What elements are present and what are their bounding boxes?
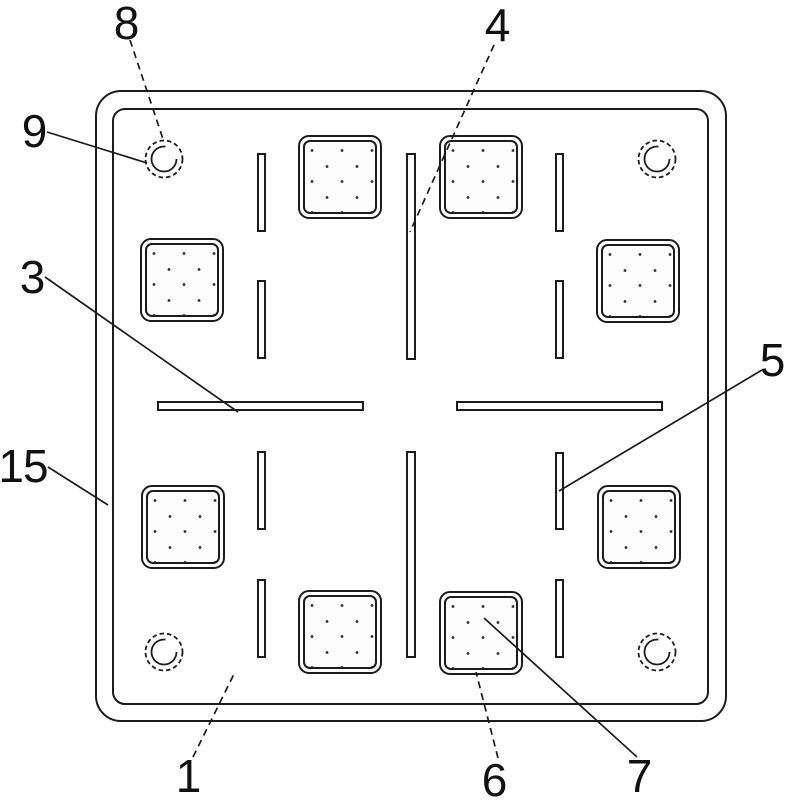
ref-label-7: 7 — [627, 753, 652, 799]
slot-vertical — [555, 280, 564, 359]
pad-square-top-center-right — [439, 135, 523, 219]
slot-horizontal-left — [157, 401, 364, 411]
pad-square-stipple — [145, 243, 219, 317]
corner-hole-bottom-left — [142, 630, 186, 674]
pad-square-stipple — [602, 490, 676, 564]
slot-vertical — [257, 579, 266, 658]
slot-vertical-center-lower — [406, 451, 416, 658]
pad-square-stipple — [303, 140, 377, 214]
pad-square-right-lower — [597, 485, 681, 569]
ref-label-15: 15 — [0, 443, 48, 489]
corner-hole-bottom-right — [635, 630, 679, 674]
pad-square-stipple — [303, 595, 377, 669]
pad-square-bottom-center-left — [298, 590, 382, 674]
slot-horizontal-right — [456, 401, 663, 411]
ref-label-6: 6 — [482, 757, 507, 800]
ref-label-1: 1 — [176, 753, 201, 799]
ref-label-9: 9 — [22, 108, 47, 154]
ref-label-4: 4 — [485, 2, 510, 48]
slot-vertical-center-upper — [406, 153, 416, 360]
slot-vertical — [257, 280, 266, 359]
pad-square-top-center-left — [298, 135, 382, 219]
ref-label-3: 3 — [20, 254, 45, 300]
pad-square-stipple — [444, 140, 518, 214]
pad-square-stipple — [444, 596, 518, 670]
corner-hole-top-right — [635, 137, 679, 181]
slot-vertical — [555, 153, 564, 232]
pad-square-left-lower — [141, 485, 225, 569]
pad-square-stipple — [601, 244, 675, 318]
slot-vertical — [555, 579, 564, 658]
pad-square-right-upper — [596, 239, 680, 323]
ref-label-8: 8 — [114, 0, 139, 46]
slot-vertical — [257, 153, 266, 232]
corner-hole-top-left — [142, 137, 186, 181]
pad-square-left-upper — [140, 238, 224, 322]
ref-label-5: 5 — [760, 337, 785, 383]
slot-vertical — [555, 452, 564, 530]
pad-square-bottom-center-right — [439, 591, 523, 675]
slot-vertical — [257, 451, 266, 530]
pad-square-stipple — [146, 490, 220, 564]
patent-figure-canvas: 8 9 3 15 1 6 7 4 5 — [0, 0, 787, 800]
